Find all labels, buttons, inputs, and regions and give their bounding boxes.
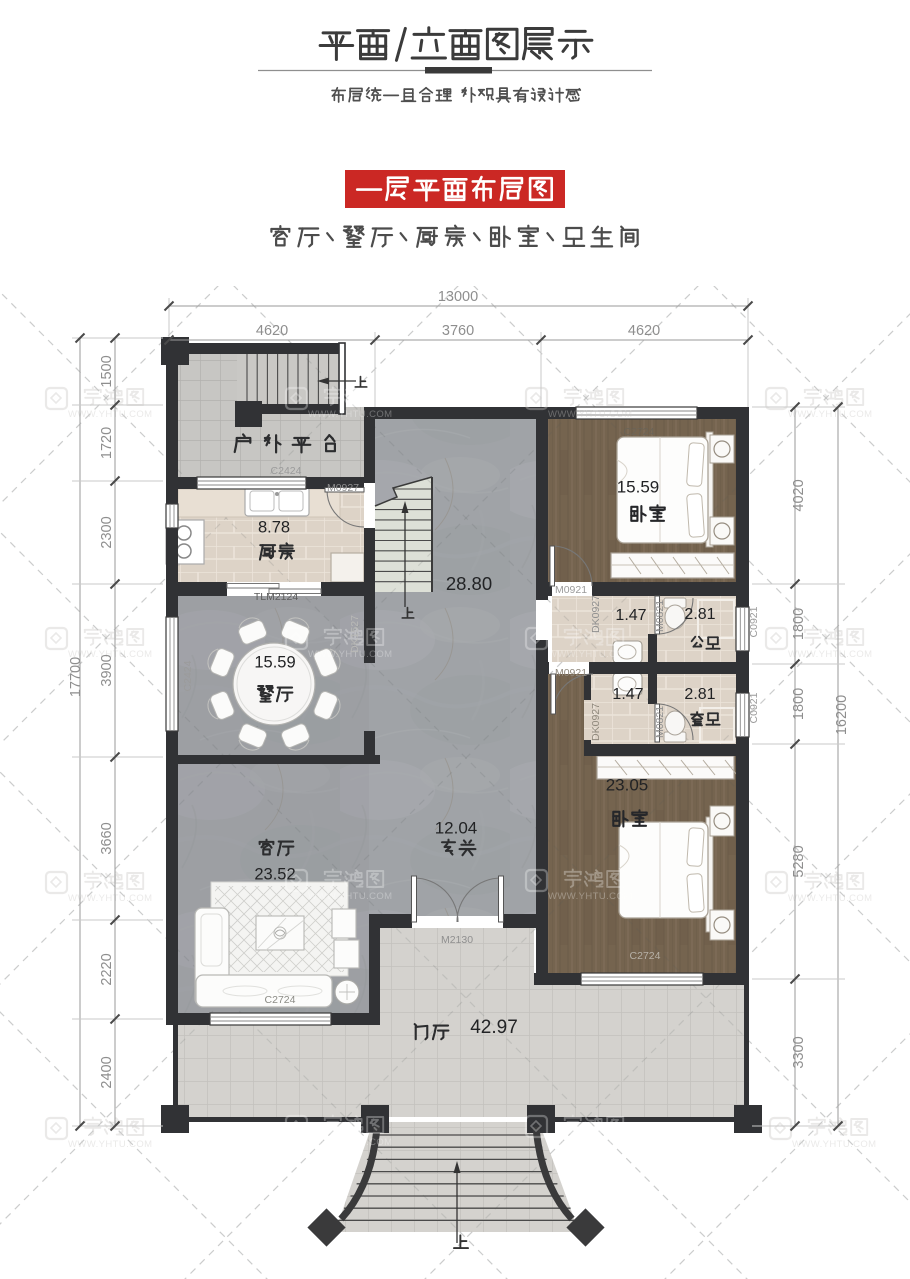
svg-text:WWW.YHTU.COM: WWW.YHTU.COM [548, 409, 632, 420]
svg-text:DK1527: DK1527 [349, 615, 361, 653]
svg-text:4620: 4620 [628, 323, 660, 339]
svg-text:8.78: 8.78 [258, 518, 290, 536]
svg-text:5280: 5280 [791, 845, 807, 877]
svg-text:DK0927: DK0927 [590, 595, 602, 633]
svg-text:2400: 2400 [99, 1056, 115, 1088]
svg-text:WWW.YHTU.COM: WWW.YHTU.COM [308, 409, 392, 420]
svg-text:28.80: 28.80 [446, 573, 492, 594]
svg-text:42.97: 42.97 [470, 1017, 518, 1038]
svg-text:TLM2124: TLM2124 [254, 591, 299, 603]
svg-text:M0921: M0921 [555, 667, 587, 679]
svg-text:WWW.YHTU.COM: WWW.YHTU.COM [788, 409, 872, 420]
svg-text:12.04: 12.04 [435, 818, 478, 837]
svg-text:2.81: 2.81 [684, 606, 715, 623]
svg-text:3760: 3760 [442, 323, 474, 339]
svg-text:C2724: C2724 [630, 950, 661, 962]
svg-text:C2424: C2424 [271, 465, 302, 477]
svg-text:1500: 1500 [99, 355, 115, 387]
svg-text:C0921: C0921 [748, 606, 760, 637]
svg-text:16200: 16200 [834, 695, 850, 735]
svg-text:13000: 13000 [438, 289, 478, 305]
svg-text:C0921: C0921 [748, 692, 760, 723]
svg-text:2.81: 2.81 [684, 686, 715, 703]
svg-text:17700: 17700 [68, 657, 84, 697]
svg-text:M0821: M0821 [654, 600, 666, 632]
svg-text:WWW.YHTU.COM: WWW.YHTU.COM [548, 891, 632, 902]
svg-text:1800: 1800 [791, 608, 807, 640]
svg-text:DK0927: DK0927 [590, 703, 602, 741]
svg-text:M2130: M2130 [441, 934, 473, 946]
svg-text:M0821: M0821 [654, 706, 666, 738]
svg-text:WWW.YHTU.COM: WWW.YHTU.COM [548, 649, 632, 660]
svg-text:WWW.YHTU.COM: WWW.YHTU.COM [308, 891, 392, 902]
svg-text:23.52: 23.52 [254, 865, 295, 883]
svg-text:15.59: 15.59 [617, 477, 660, 496]
svg-text:WWW.YHTU.COM: WWW.YHTU.COM [308, 1137, 392, 1148]
svg-text:WWW.YHTU.COM: WWW.YHTU.COM [68, 1139, 152, 1150]
svg-text:C2724: C2724 [624, 426, 655, 438]
svg-text:C2424: C2424 [182, 660, 194, 691]
svg-text:1.47: 1.47 [612, 686, 643, 703]
svg-text:15.59: 15.59 [254, 653, 295, 671]
svg-text:WWW.YHTU.COM: WWW.YHTU.COM [68, 893, 152, 904]
svg-text:WWW.YHTU.COM: WWW.YHTU.COM [792, 1139, 876, 1150]
svg-text:WWW.YHTU.COM: WWW.YHTU.COM [788, 649, 872, 660]
svg-text:3300: 3300 [791, 1036, 807, 1068]
svg-text:4020: 4020 [791, 479, 807, 511]
svg-text:WWW.YHTU.COM: WWW.YHTU.COM [788, 893, 872, 904]
svg-text:3900: 3900 [99, 654, 115, 686]
svg-text:23.05: 23.05 [606, 775, 649, 794]
svg-text:2220: 2220 [99, 953, 115, 985]
svg-text:1720: 1720 [99, 427, 115, 459]
svg-text:2300: 2300 [99, 516, 115, 548]
svg-text:WWW.YHTU.COM: WWW.YHTU.COM [68, 409, 152, 420]
svg-text:1800: 1800 [791, 688, 807, 720]
svg-text:M0921: M0921 [555, 584, 587, 596]
svg-text:C2724: C2724 [265, 994, 296, 1006]
svg-text:1.47: 1.47 [615, 607, 646, 624]
svg-text:M0927: M0927 [327, 482, 359, 494]
svg-text:4620: 4620 [256, 323, 288, 339]
svg-text:3660: 3660 [99, 822, 115, 854]
svg-text:WWW.YHTU.COM: WWW.YHTU.COM [548, 1137, 632, 1148]
